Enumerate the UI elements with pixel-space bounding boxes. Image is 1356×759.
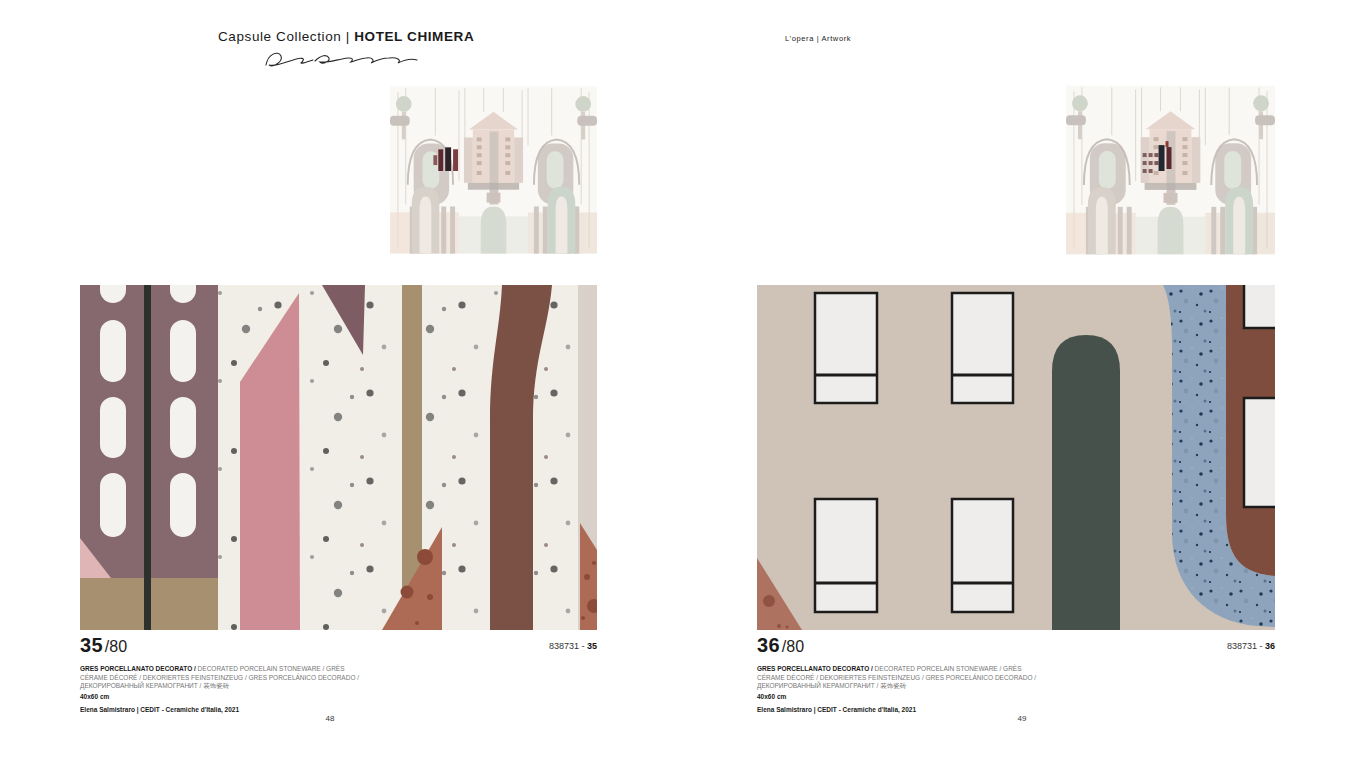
- artwork-thumbnail-right: [1066, 85, 1275, 255]
- tile-credit: Elena Salmistraro | CEDIT - Ceramiche d'…: [80, 706, 239, 713]
- tile-total: /80: [105, 638, 127, 655]
- tile-index: 36/80: [757, 634, 804, 657]
- tile-number: 35: [80, 634, 103, 656]
- description-bold: GRES PORCELLANATO DECORATO /: [757, 665, 873, 672]
- artist-signature: [260, 48, 425, 74]
- page-number-left: 48: [300, 714, 360, 723]
- tile-number: 36: [757, 634, 780, 656]
- tile-description: GRES PORCELLANATO DECORATO / DECORATED P…: [80, 665, 372, 691]
- code-number: 36: [1265, 641, 1275, 651]
- collection-title: Capsule Collection | HOTEL CHIMERA: [218, 29, 474, 44]
- description-bold: GRES PORCELLANATO DECORATO /: [80, 665, 196, 672]
- tile-total: /80: [782, 638, 804, 655]
- artwork-thumbnail-left: [390, 85, 597, 255]
- page-left: Capsule Collection | HOTEL CHIMERA: [0, 0, 678, 759]
- section-label: L'opera | Artwork: [785, 34, 851, 43]
- tile-description: GRES PORCELLANATO DECORATO / DECORATED P…: [757, 665, 1049, 691]
- page-right: L'opera | Artwork: [678, 0, 1356, 759]
- collection-prefix: Capsule Collection: [218, 29, 341, 44]
- page-number-right: 49: [992, 714, 1052, 723]
- code-number: 35: [587, 641, 597, 651]
- code-prefix: 838731 -: [549, 641, 587, 651]
- title-divider: |: [346, 29, 350, 44]
- green-arch-column: [1052, 335, 1120, 630]
- tile-size: 40x60 cm: [80, 693, 109, 700]
- collection-name: HOTEL CHIMERA: [354, 29, 474, 44]
- tile-artwork-35: [80, 285, 597, 630]
- tile-size: 40x60 cm: [757, 693, 786, 700]
- tile-code: 838731 - 36: [1128, 641, 1275, 651]
- catalog-spread: Capsule Collection | HOTEL CHIMERA: [0, 0, 1356, 759]
- tile-artwork-36: [757, 285, 1275, 630]
- code-prefix: 838731 -: [1227, 641, 1265, 651]
- tile-code: 838731 - 35: [450, 641, 597, 651]
- tile-index: 35/80: [80, 634, 127, 657]
- black-vertical-line: [144, 285, 151, 630]
- tile-credit: Elena Salmistraro | CEDIT - Ceramiche d'…: [757, 706, 916, 713]
